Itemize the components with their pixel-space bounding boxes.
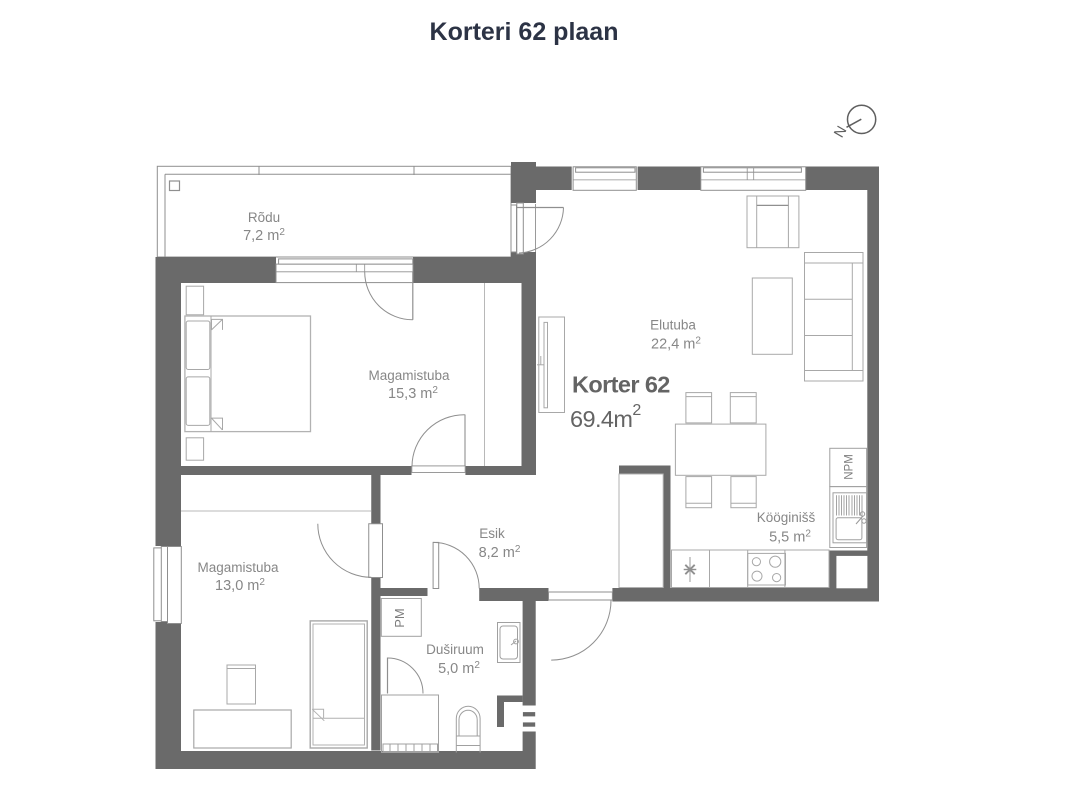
svg-text:Esik: Esik (479, 526, 505, 541)
svg-text:69.4m2: 69.4m2 (570, 402, 641, 432)
svg-text:5,5 m2: 5,5 m2 (769, 529, 811, 546)
svg-text:7,2 m2: 7,2 m2 (243, 227, 285, 244)
svg-text:13,0 m2: 13,0 m2 (215, 577, 265, 594)
svg-text:5,0 m2: 5,0 m2 (438, 660, 480, 677)
svg-text:Elutuba: Elutuba (650, 318, 696, 333)
svg-text:Korteri 62 plaan: Korteri 62 plaan (430, 18, 619, 46)
svg-text:22,4 m2: 22,4 m2 (651, 336, 701, 353)
svg-text:Kööginišš: Kööginišš (757, 510, 816, 525)
svg-text:8,2 m2: 8,2 m2 (479, 544, 521, 561)
svg-text:Korter 62: Korter 62 (572, 371, 670, 397)
svg-text:NPM: NPM (844, 454, 856, 480)
svg-text:Magamistuba: Magamistuba (197, 560, 279, 575)
svg-text:15,3 m2: 15,3 m2 (388, 385, 438, 402)
svg-text:PM: PM (392, 608, 407, 628)
svg-text:Magamistuba: Magamistuba (368, 368, 450, 383)
svg-text:Rõdu: Rõdu (248, 210, 280, 225)
svg-text:Duširuum: Duširuum (426, 642, 484, 657)
